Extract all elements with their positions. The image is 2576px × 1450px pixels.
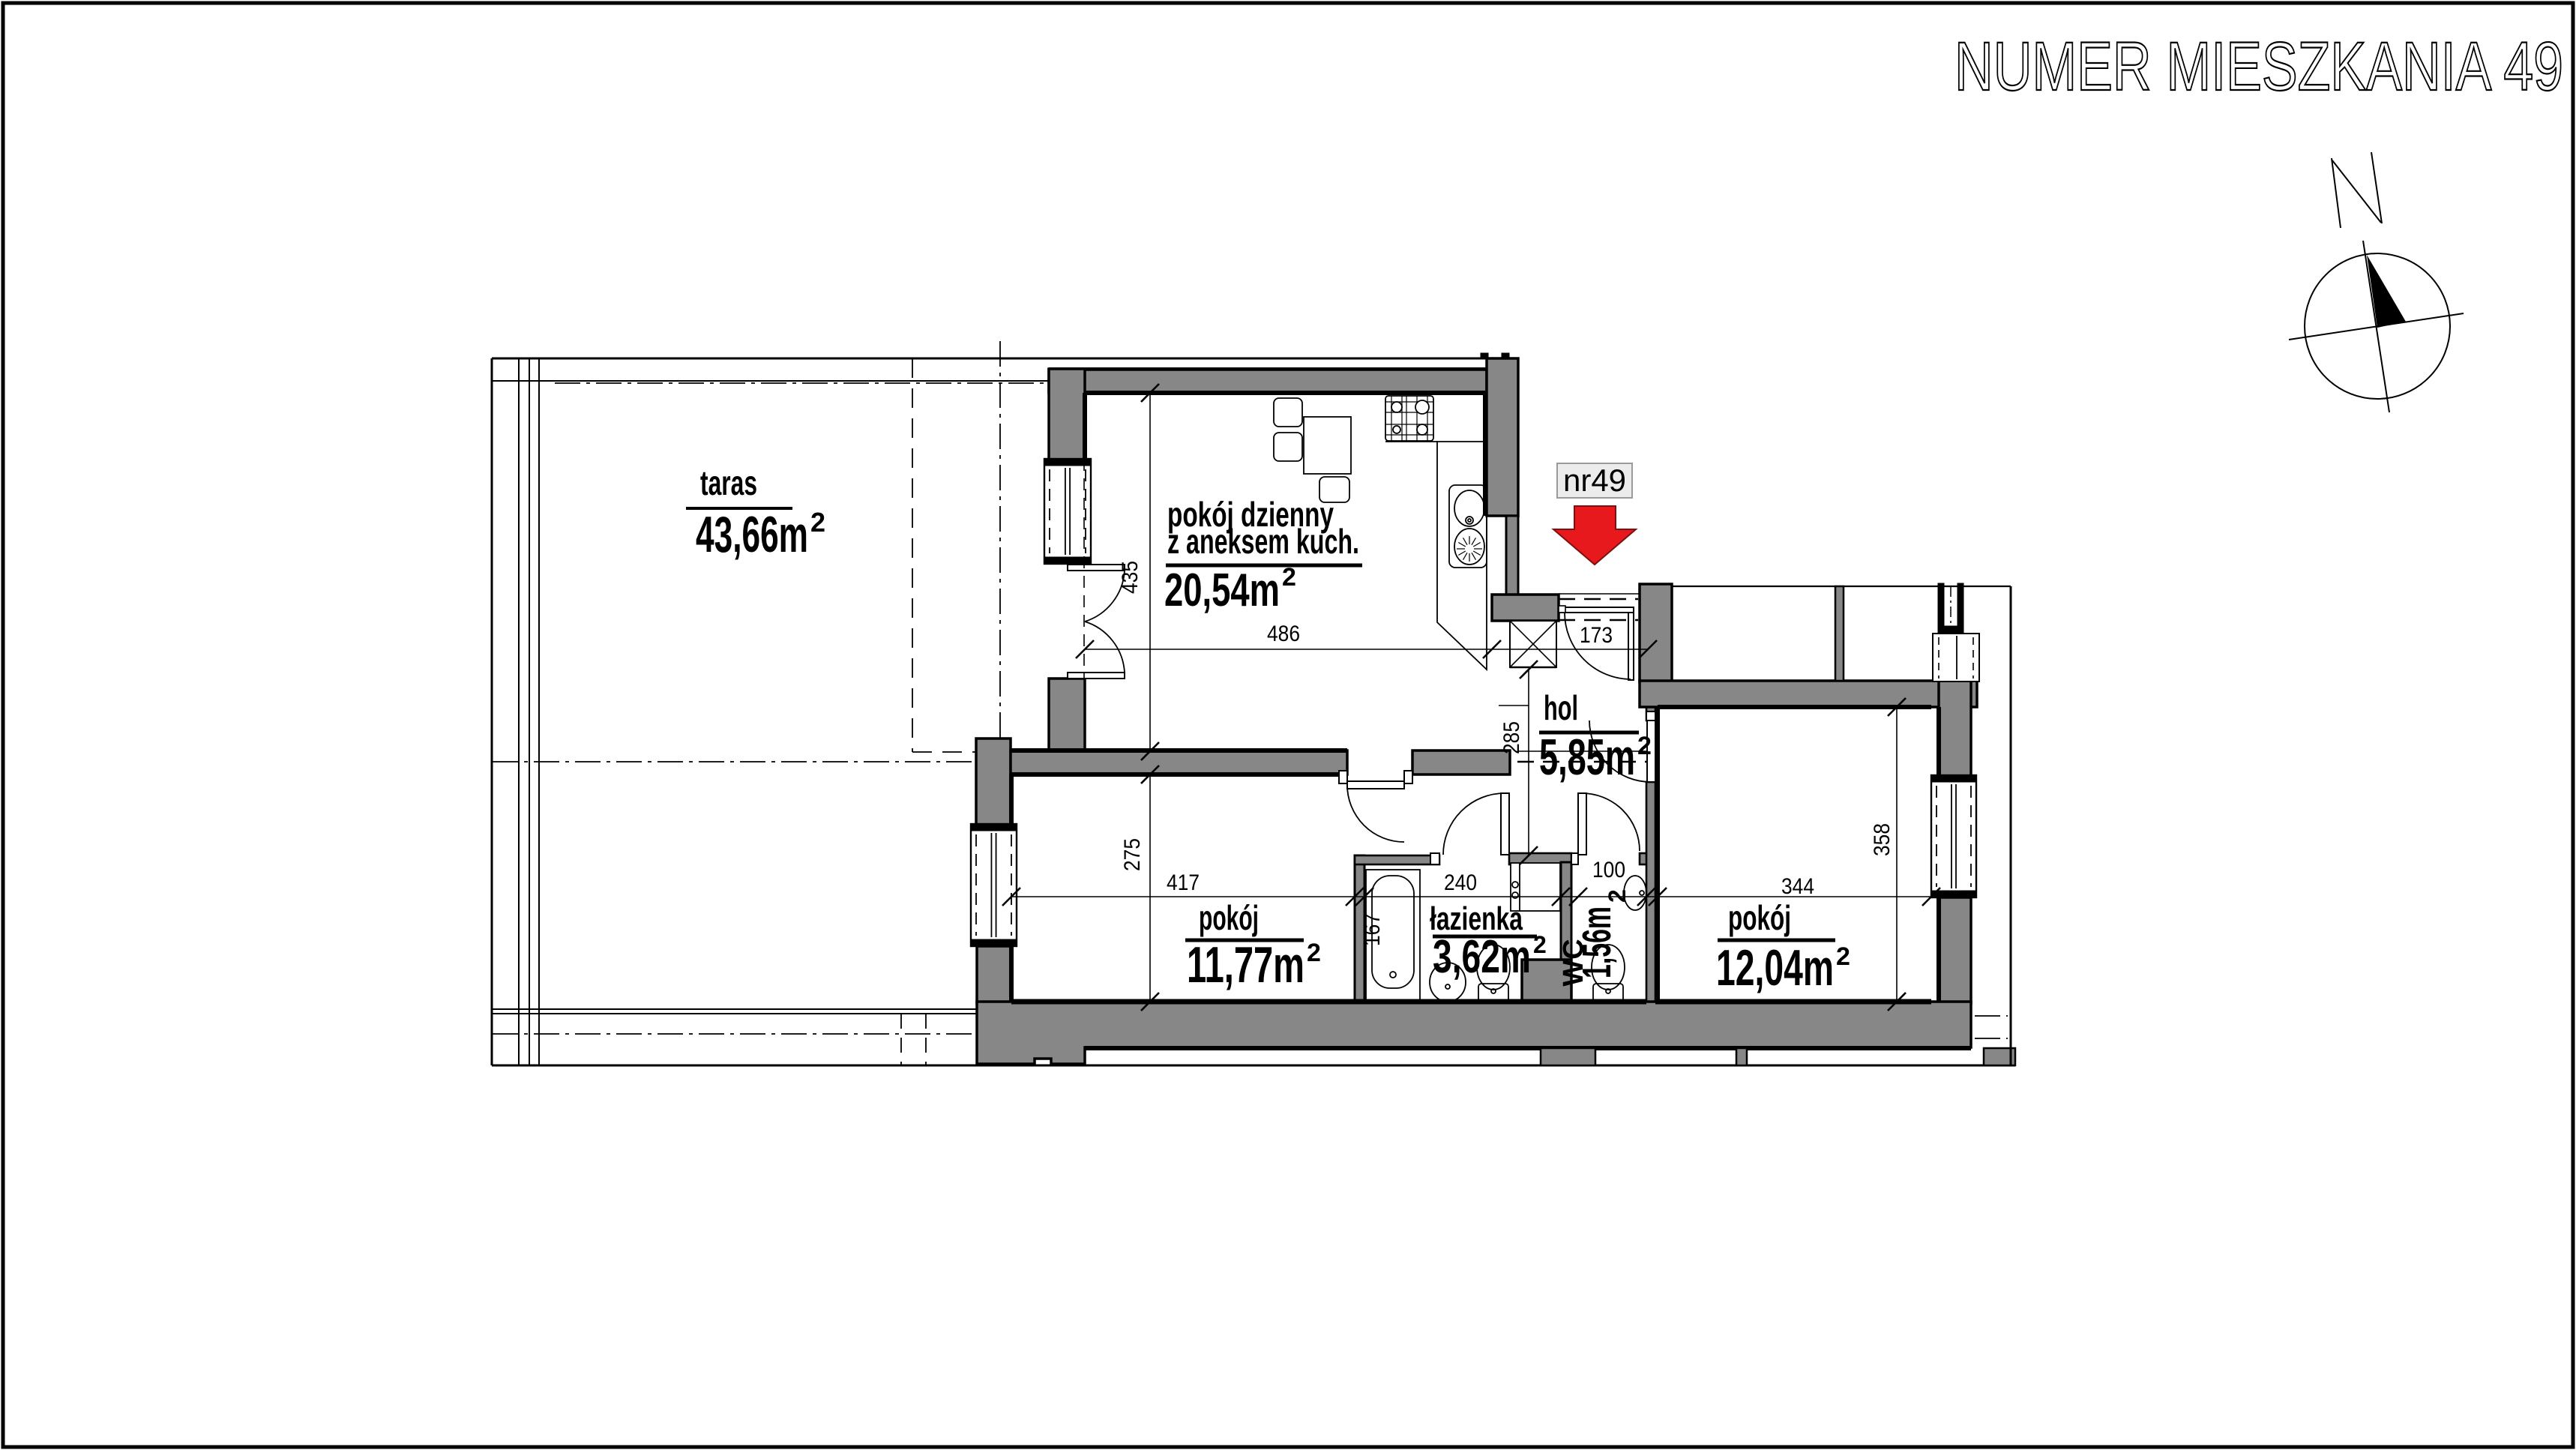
svg-text:hol: hol <box>1544 688 1578 727</box>
svg-text:nr49: nr49 <box>1563 463 1626 498</box>
svg-text:3,62m: 3,62m <box>1433 931 1531 983</box>
svg-text:pokój: pokój <box>1199 898 1259 937</box>
svg-text:2: 2 <box>1604 889 1631 903</box>
svg-text:taras: taras <box>700 463 757 502</box>
svg-text:486: 486 <box>1267 622 1300 646</box>
svg-text:11,77m: 11,77m <box>1187 936 1304 993</box>
svg-text:275: 275 <box>1120 838 1145 871</box>
svg-text:2: 2 <box>1637 732 1652 760</box>
svg-text:417: 417 <box>1167 870 1200 895</box>
svg-text:z aneksem kuch.: z aneksem kuch. <box>1167 522 1359 561</box>
svg-text:435: 435 <box>1118 561 1143 594</box>
svg-text:358: 358 <box>1870 823 1895 856</box>
svg-text:344: 344 <box>1781 874 1814 899</box>
svg-text:20,54m: 20,54m <box>1164 565 1280 616</box>
svg-text:100: 100 <box>1592 858 1625 882</box>
svg-text:240: 240 <box>1444 870 1477 895</box>
svg-text:12,04m: 12,04m <box>1716 939 1834 996</box>
svg-text:1,56m: 1,56m <box>1574 906 1619 978</box>
svg-text:173: 173 <box>1580 623 1613 648</box>
svg-text:NUMER MIESZKANIA 49: NUMER MIESZKANIA 49 <box>1954 28 2563 105</box>
svg-text:2: 2 <box>1533 931 1547 958</box>
svg-text:5,85m: 5,85m <box>1539 729 1635 786</box>
svg-text:2: 2 <box>1282 563 1296 592</box>
svg-text:167: 167 <box>1360 913 1385 946</box>
svg-text:2: 2 <box>810 507 825 538</box>
svg-text:285: 285 <box>1499 721 1524 754</box>
svg-text:2: 2 <box>1836 942 1850 971</box>
svg-text:43,66m: 43,66m <box>696 506 808 563</box>
svg-text:2: 2 <box>1307 939 1321 967</box>
svg-text:pokój: pokój <box>1728 898 1791 937</box>
